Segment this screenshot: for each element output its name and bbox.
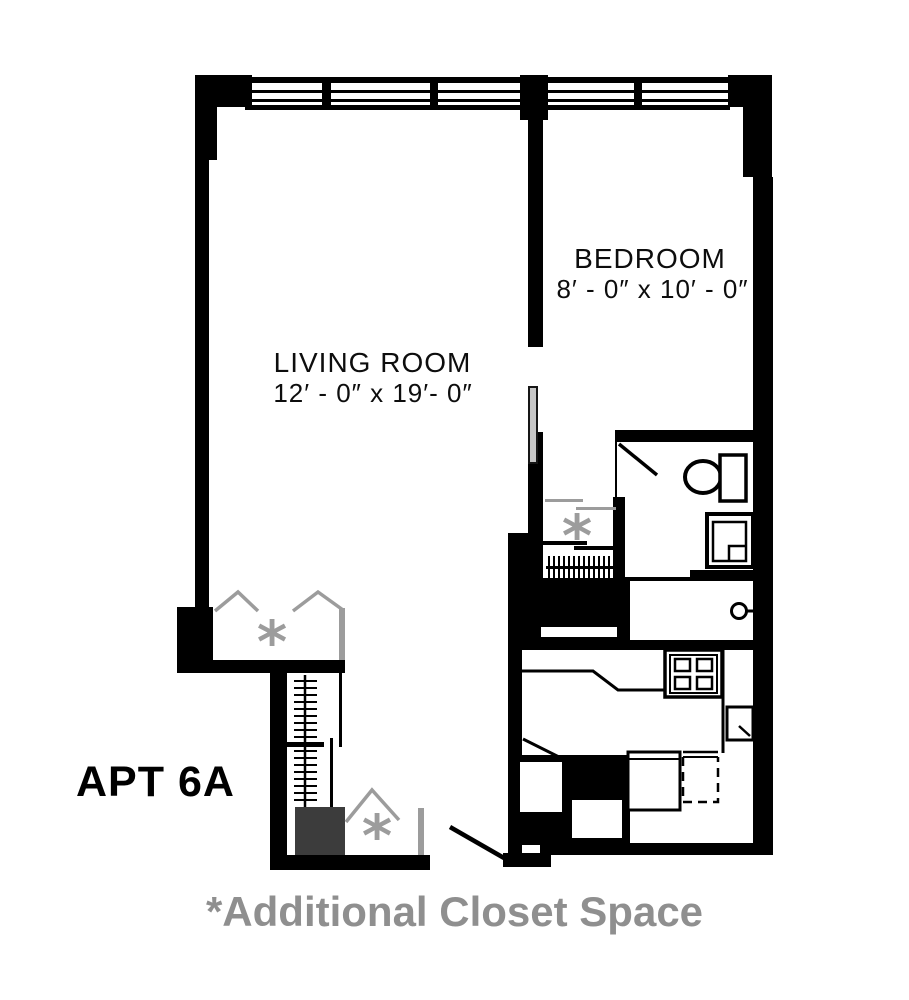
stove: [665, 650, 722, 697]
toilet: [685, 455, 746, 501]
closet-door-panel: [418, 808, 424, 855]
closet-shelf-unit: [295, 807, 345, 855]
tall-closet: [283, 673, 345, 855]
closet-shelf: [283, 742, 324, 747]
bathroom-door-swing: [619, 444, 657, 475]
living-room-dimensions: 12′ - 0″ x 19′- 0″: [255, 378, 491, 409]
counter-edge: [522, 671, 666, 690]
vanity-sink: [707, 514, 753, 567]
floor-plan: * * *: [0, 0, 909, 1000]
bedroom-label: BEDROOM: [550, 243, 750, 275]
closet-asterisk: *: [562, 502, 592, 570]
entry-closet-bay: [572, 800, 622, 838]
bedroom-dimensions: 8′ - 0″ x 10′ - 0″: [540, 274, 765, 305]
closet-asterisk: *: [257, 608, 287, 676]
window-mullion: [634, 77, 642, 110]
bedroom-door-leaf: [529, 387, 537, 463]
closet-door-swing: [523, 739, 559, 757]
entry-door-swing: [450, 827, 504, 858]
closet-footnote: *Additional Closet Space: [0, 888, 909, 936]
entry-closet-bay: [520, 762, 562, 812]
closet-door-panel: [339, 608, 345, 660]
closet-partition: [330, 738, 333, 808]
bifold-door-chevron: [215, 592, 258, 611]
living-room-label: LIVING ROOM: [260, 347, 485, 379]
window-mullion: [322, 77, 331, 110]
bathroom: [619, 444, 773, 619]
hall-closet: *: [543, 499, 617, 578]
dishwasher: [683, 752, 718, 802]
closet-shelf-slot: [541, 627, 617, 637]
window-band: [245, 75, 730, 120]
kitchen-sink: [727, 707, 753, 740]
closet-asterisk: *: [362, 802, 392, 870]
refrigerator: [628, 752, 680, 810]
apartment-label: APT 6A: [76, 758, 235, 807]
bifold-door-chevron: [293, 592, 343, 611]
window-mullion: [430, 77, 438, 110]
closet-partition: [339, 673, 342, 747]
floor-plan-drawing: * * *: [0, 0, 909, 1000]
